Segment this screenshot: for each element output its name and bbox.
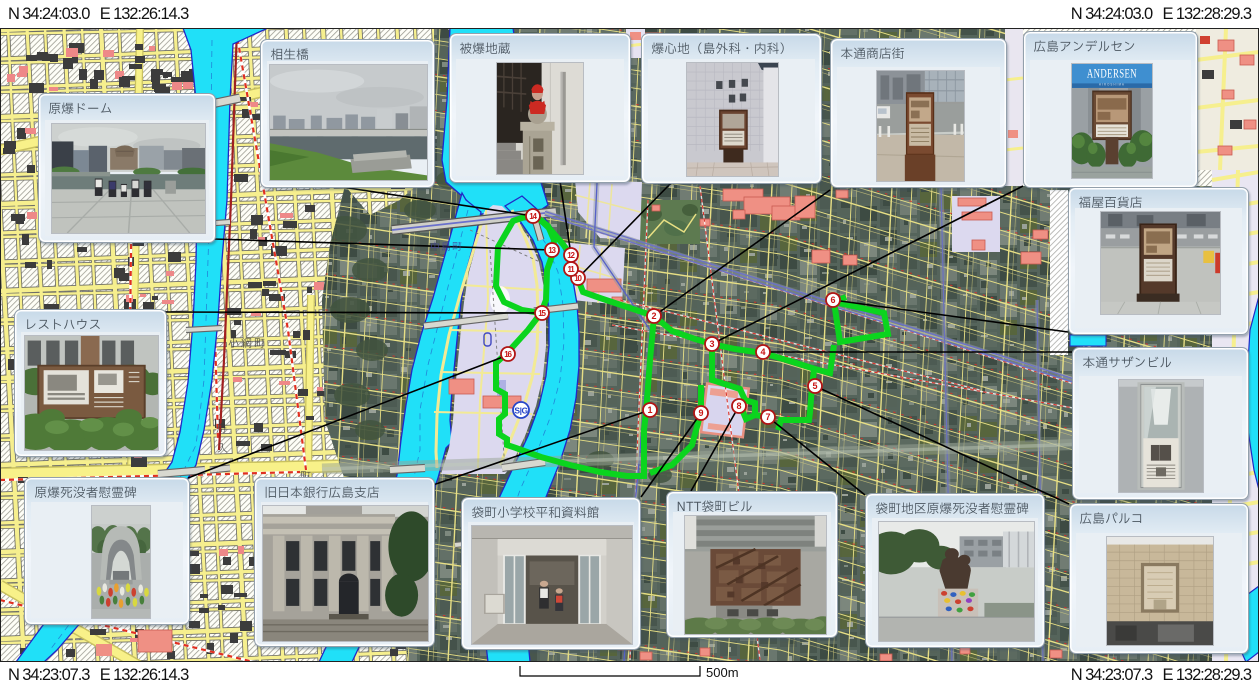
svg-text:4: 4 — [760, 347, 765, 357]
svg-text:5: 5 — [812, 381, 817, 391]
svg-text:3: 3 — [709, 339, 714, 349]
svg-text:8: 8 — [736, 401, 741, 411]
svg-text:9: 9 — [698, 408, 703, 418]
svg-text:500m: 500m — [706, 665, 739, 680]
svg-text:7: 7 — [765, 412, 770, 422]
svg-text:HIROSHIMA: HIROSHIMA — [1099, 82, 1125, 87]
svg-text:ANDERSEN: ANDERSEN — [1087, 67, 1137, 81]
svg-text:6: 6 — [830, 295, 835, 305]
svg-text:1: 1 — [647, 405, 652, 415]
svg-text:S|G: S|G — [514, 405, 528, 415]
svg-text:2: 2 — [651, 311, 656, 321]
